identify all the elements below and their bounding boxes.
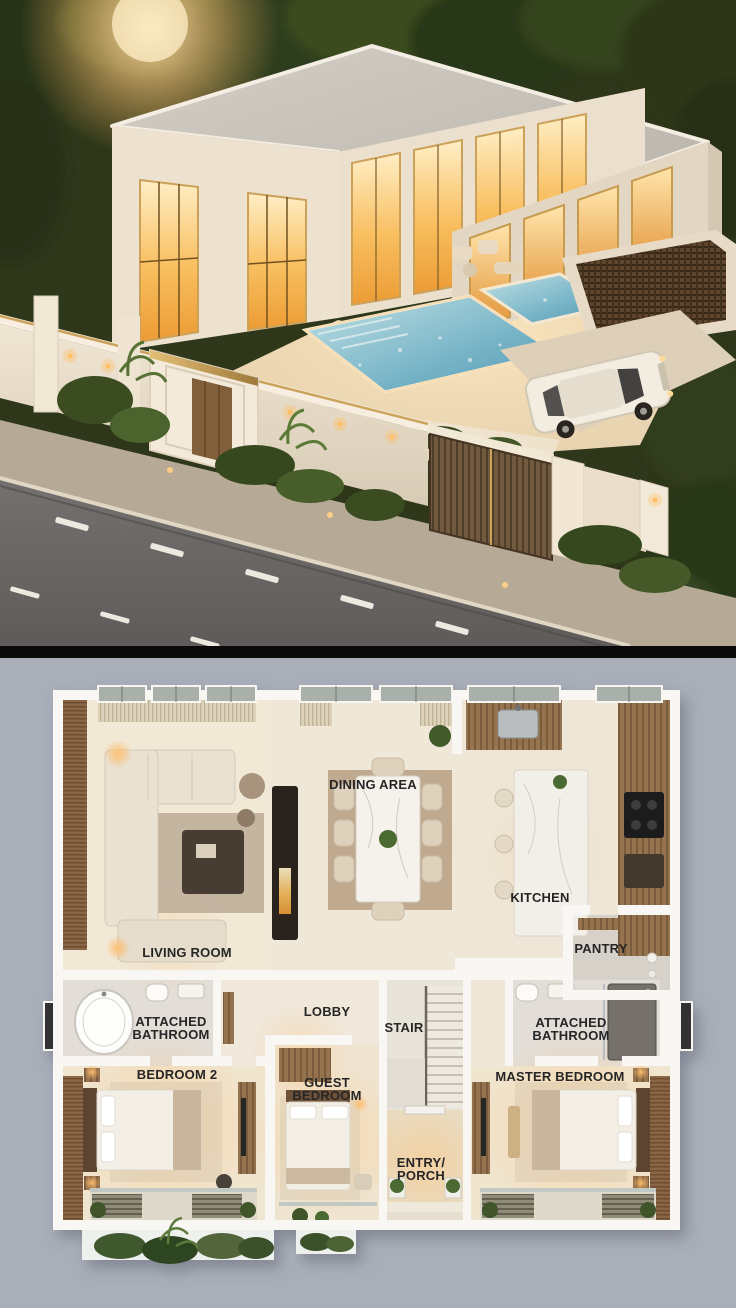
label-line: BEDROOM: [292, 1088, 361, 1103]
exterior-rendering: [0, 0, 736, 646]
label-attached-bathroom-left: ATTACHED BATHROOM: [132, 1014, 209, 1042]
room-lobby: [223, 992, 234, 1044]
label-entry-porch: ENTRY/ PORCH: [397, 1155, 446, 1183]
label-lobby: LOBBY: [304, 1004, 351, 1019]
deck-plant: [482, 1202, 498, 1218]
centerpiece-plant: [379, 830, 397, 848]
floor-lamp-glow: [104, 740, 132, 768]
deck-plant: [90, 1202, 106, 1218]
sofa-chaise: [105, 750, 158, 926]
entry-door-leaf: [405, 1106, 445, 1114]
faucet: [515, 705, 521, 711]
cooktop: [624, 792, 664, 838]
console-table: [223, 992, 234, 1044]
curtains: [98, 700, 256, 722]
warm-tint: [0, 0, 736, 646]
sink: [498, 710, 538, 738]
lamp-glow: [84, 1064, 100, 1080]
plan-body: [44, 686, 692, 1264]
tv-fireplace-wall: [272, 786, 298, 940]
curtains: [300, 700, 332, 726]
fireplace-glow: [279, 868, 291, 914]
deck-plant: [240, 1202, 256, 1218]
pantry-item: [648, 970, 656, 978]
pouf: [239, 773, 265, 799]
pillow: [618, 1096, 632, 1126]
bed-throw: [532, 1090, 560, 1170]
glass-wall: [480, 1188, 656, 1192]
panel-divider: [0, 646, 736, 658]
bed-throw: [173, 1090, 201, 1170]
coffee-table: [182, 830, 244, 894]
sink: [178, 984, 204, 998]
toilet: [146, 984, 168, 1001]
label-line: BATHROOM: [532, 1028, 609, 1043]
pouf: [237, 809, 255, 827]
pantry-shelf: [578, 918, 662, 930]
bed-throw: [286, 1168, 350, 1184]
label-pantry: PANTRY: [574, 941, 627, 956]
oven: [624, 854, 664, 888]
label-dining-area: DINING AREA: [329, 777, 417, 792]
pillow: [322, 1106, 348, 1119]
deck-plant: [640, 1202, 656, 1218]
water-heater: [647, 953, 657, 963]
glass-wall: [90, 1188, 257, 1192]
pillow: [290, 1106, 316, 1119]
wood-accent-wall: [63, 1076, 83, 1220]
porch-plant: [446, 1179, 460, 1193]
stair-landing: [387, 1058, 425, 1108]
pillow: [101, 1132, 115, 1162]
corner-plant: [429, 725, 451, 747]
pillow: [101, 1096, 115, 1126]
window: [680, 1002, 692, 1050]
toilet: [516, 984, 538, 1001]
stool: [216, 1174, 232, 1190]
pillow: [618, 1132, 632, 1162]
floor-lamp-glow: [106, 936, 130, 960]
glass-wall: [279, 1202, 377, 1206]
tv: [241, 1098, 246, 1156]
lamp-glow: [633, 1064, 649, 1080]
wood-accent-wall: [63, 700, 87, 950]
porch-step: [387, 1202, 463, 1212]
label-attached-bathroom-right: ATTACHED BATHROOM: [532, 1015, 609, 1043]
label-master-bedroom: MASTER BEDROOM: [495, 1069, 624, 1084]
stair-flight: [427, 986, 463, 1108]
tv: [481, 1098, 486, 1156]
tv-console: [238, 1082, 256, 1174]
tub-faucet: [102, 992, 107, 997]
label-kitchen: KITCHEN: [510, 890, 569, 905]
bench: [508, 1106, 520, 1158]
table-decor: [196, 844, 216, 858]
label-bedroom-2: BEDROOM 2: [137, 1067, 218, 1082]
headboard: [83, 1088, 97, 1172]
label-stair: STAIR: [384, 1020, 423, 1035]
label-living-room: LIVING ROOM: [142, 945, 232, 960]
floor-plan: LIVING ROOM DINING AREA KITCHEN PANTRY A…: [0, 658, 736, 1308]
label-line: PORCH: [397, 1168, 445, 1183]
curtains: [420, 700, 452, 726]
label-line: BATHROOM: [132, 1027, 209, 1042]
bathtub: [75, 990, 133, 1054]
island-plant: [553, 775, 567, 789]
deck-mat: [192, 1194, 242, 1218]
porch-step: [387, 1212, 463, 1221]
headboard: [636, 1088, 650, 1172]
armchair: [354, 1174, 372, 1190]
architectural-presentation: LIVING ROOM DINING AREA KITCHEN PANTRY A…: [0, 0, 736, 1308]
